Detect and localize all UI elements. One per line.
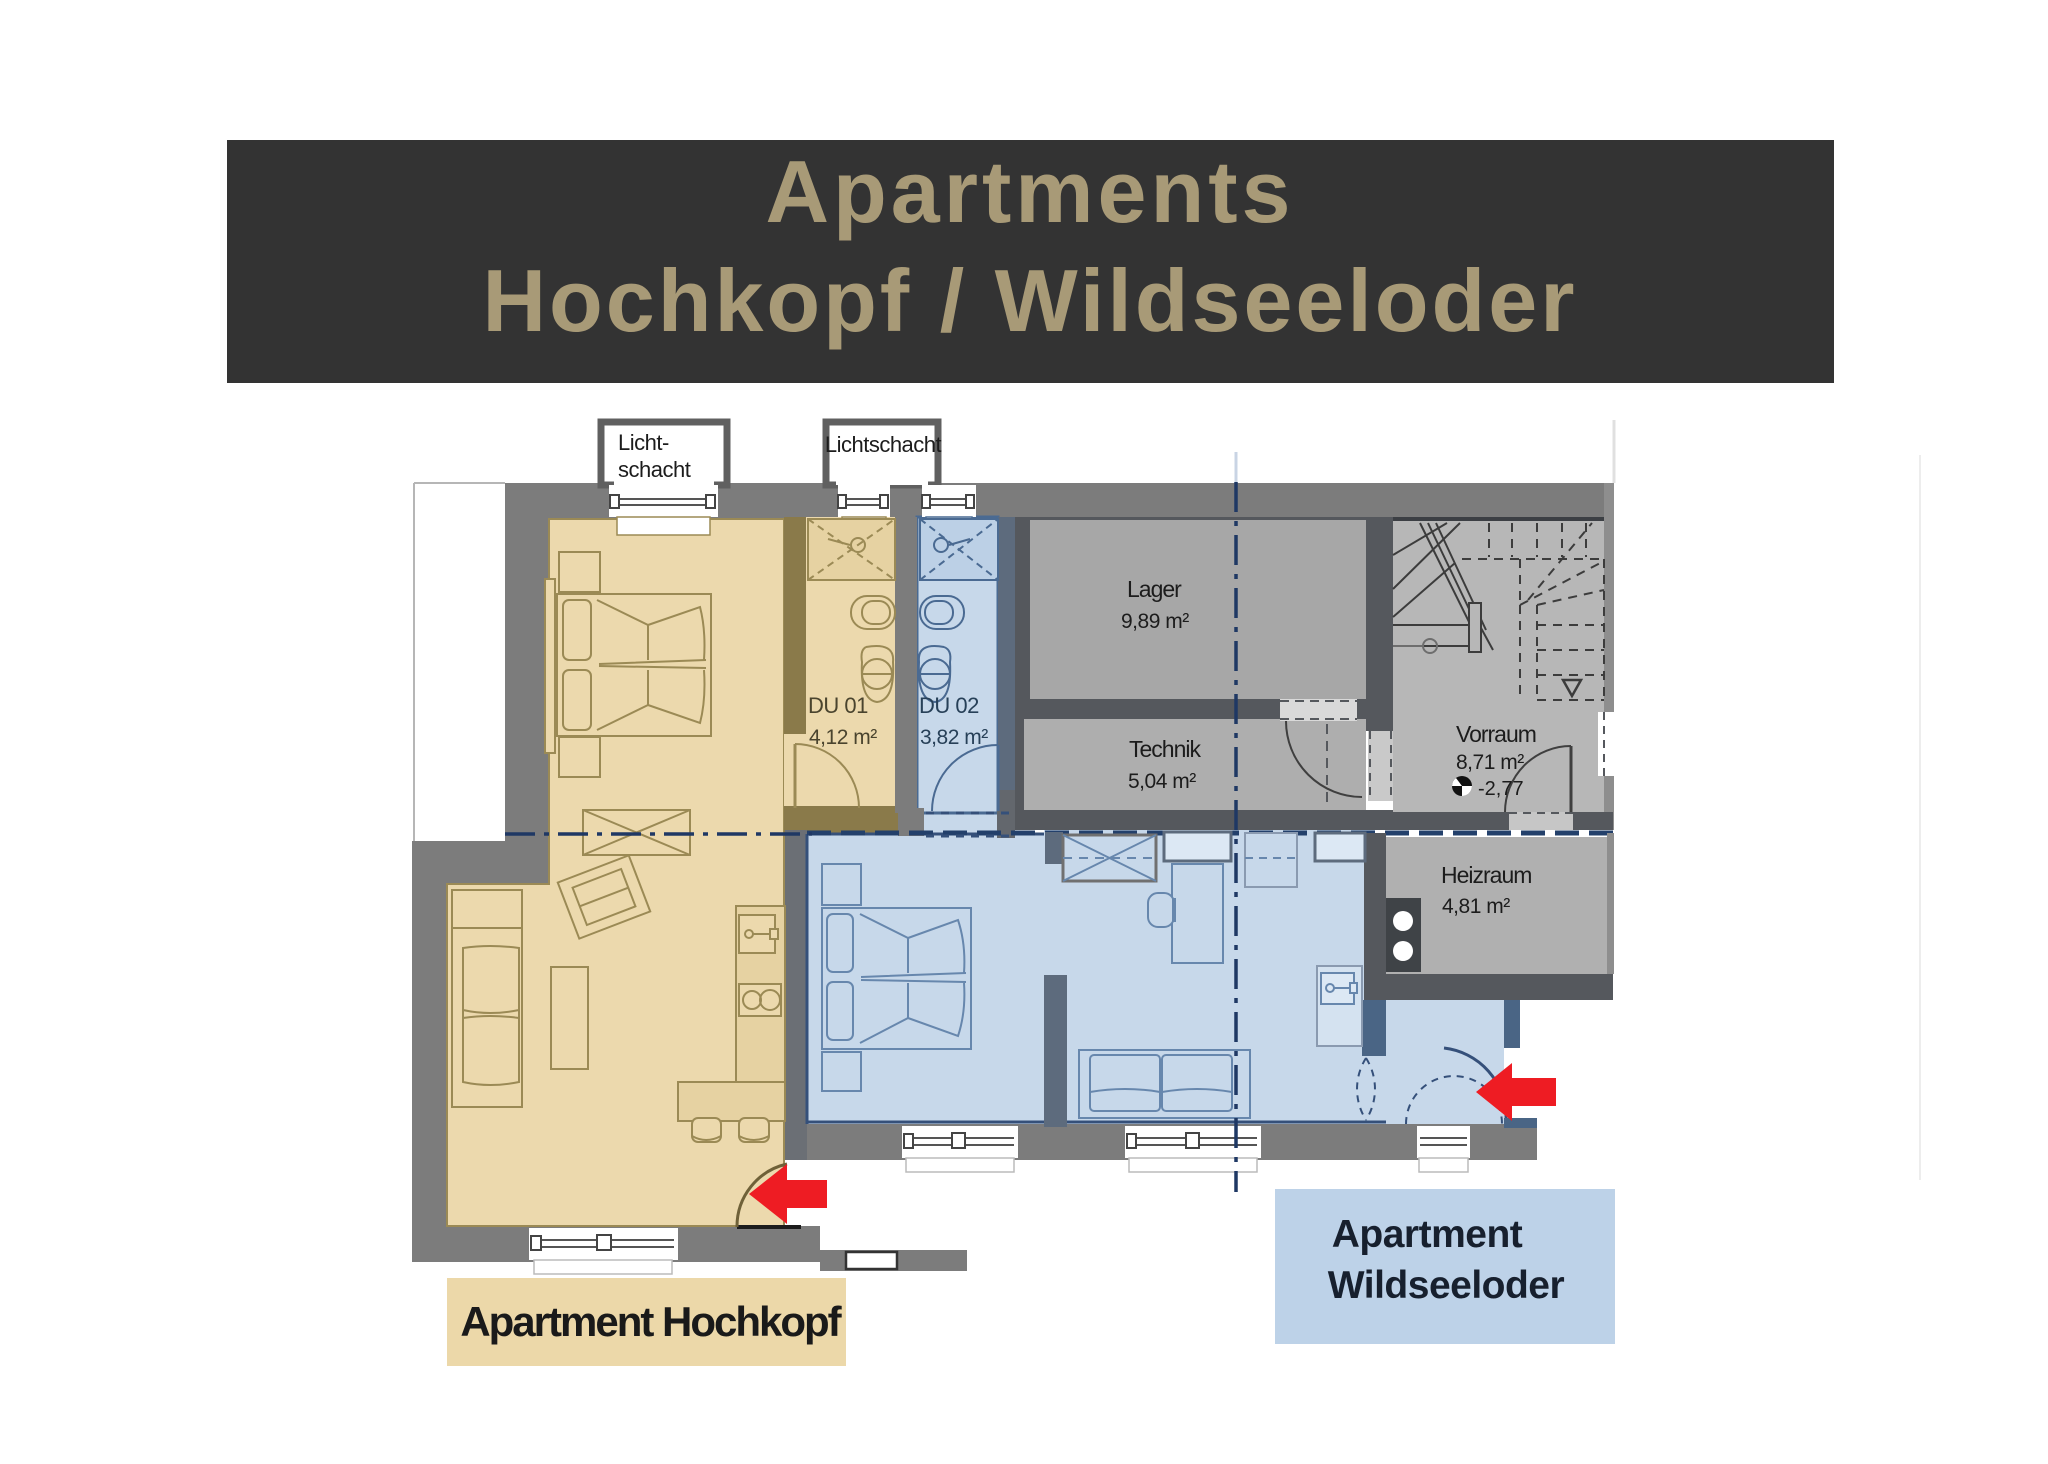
svg-text:DU 01: DU 01 [808, 693, 868, 718]
svg-text:Apartment: Apartment [1332, 1213, 1523, 1256]
svg-text:9,89 m²: 9,89 m² [1121, 610, 1189, 633]
svg-text:Technik: Technik [1129, 736, 1201, 762]
svg-text:-2,77: -2,77 [1478, 778, 1524, 800]
svg-text:5,04 m²: 5,04 m² [1128, 770, 1196, 793]
svg-text:Heizraum: Heizraum [1441, 862, 1531, 888]
svg-text:Vorraum: Vorraum [1456, 721, 1536, 747]
svg-text:8,71 m²: 8,71 m² [1456, 751, 1524, 774]
svg-text:Apartment Hochkopf: Apartment Hochkopf [460, 1298, 842, 1345]
svg-text:DU 02: DU 02 [919, 693, 979, 718]
svg-text:Lager: Lager [1127, 576, 1182, 602]
svg-text:schacht: schacht [618, 457, 691, 482]
svg-text:Apartments: Apartments [766, 142, 1295, 241]
svg-text:Licht-: Licht- [618, 430, 669, 455]
svg-text:3,82 m²: 3,82 m² [920, 726, 988, 749]
svg-text:Wildseeloder: Wildseeloder [1328, 1264, 1565, 1307]
svg-text:Hochkopf / Wildseeloder: Hochkopf / Wildseeloder [482, 251, 1577, 350]
svg-text:4,12 m²: 4,12 m² [809, 726, 877, 749]
svg-text:4,81 m²: 4,81 m² [1442, 895, 1510, 918]
svg-text:Lichtschacht: Lichtschacht [825, 432, 942, 457]
